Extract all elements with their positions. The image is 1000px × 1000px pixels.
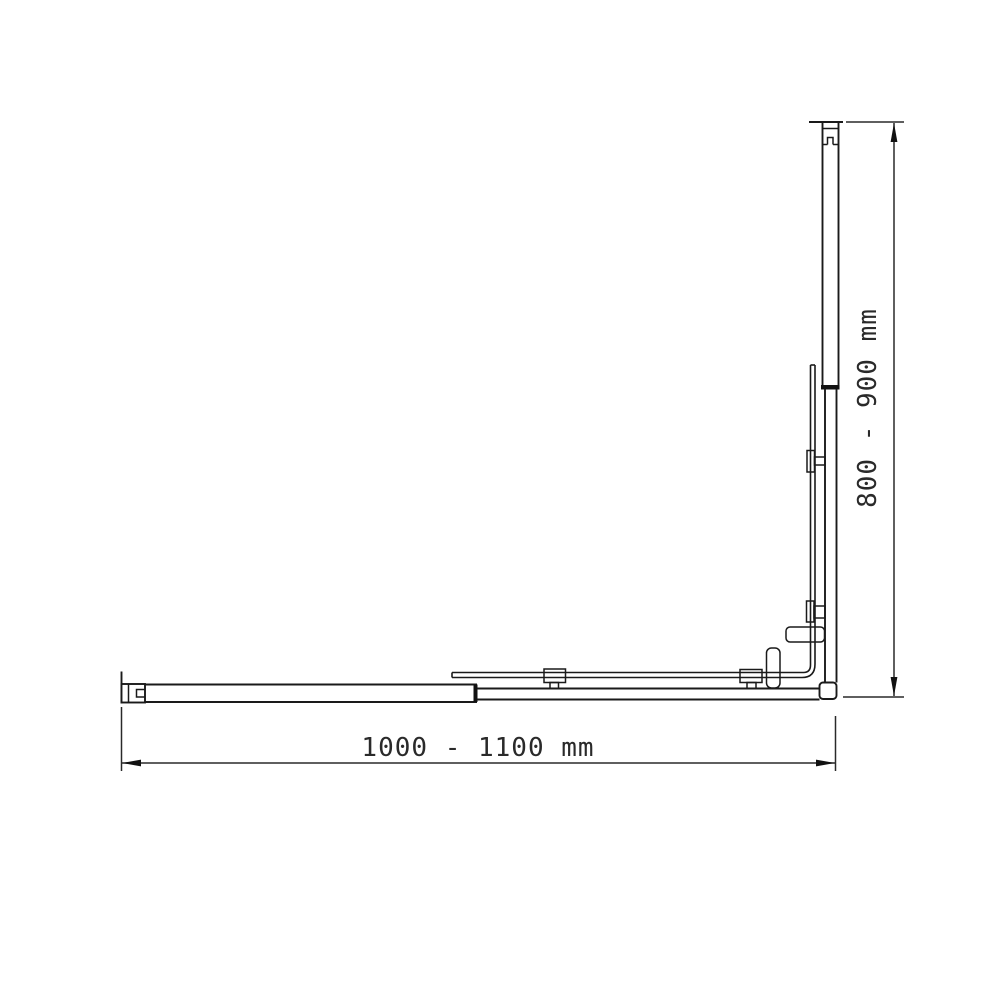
- glass-clamps: [544, 451, 825, 689]
- bottom-rail: [122, 672, 837, 704]
- right-wall-profile: [809, 122, 843, 683]
- height-arrow-top: [891, 123, 898, 142]
- left-wall-bracket: [122, 684, 146, 703]
- glass-outer-edge: [452, 365, 815, 678]
- profile-adjustment-cap: [821, 385, 840, 390]
- right-handle-tab: [786, 627, 825, 642]
- top-bracket-notch: [828, 138, 834, 145]
- corner-junction-block: [820, 683, 837, 700]
- thick-rail-end-cap: [474, 685, 478, 703]
- drawing-canvas: 1000 - 1100 mm 800 - 900 mm: [0, 0, 1000, 1000]
- corner-bumper-block: [767, 648, 781, 688]
- glass-panel: [452, 365, 815, 678]
- width-arrow-right: [816, 760, 835, 767]
- glass-inner-edge: [452, 365, 811, 673]
- height-dimension: 800 - 900 mm: [843, 122, 904, 697]
- shower-screen-plan-drawing: 1000 - 1100 mm 800 - 900 mm: [0, 0, 1000, 1000]
- width-arrow-left: [122, 760, 141, 767]
- height-dimension-label: 800 - 900 mm: [853, 308, 883, 508]
- bottom-left-glass-clip: [544, 669, 566, 683]
- right-upper-clip-connector: [815, 457, 826, 465]
- width-dimension: 1000 - 1100 mm: [122, 707, 836, 771]
- height-arrow-bottom: [891, 677, 898, 696]
- bottom-right-glass-clip: [740, 670, 762, 683]
- width-dimension-label: 1000 - 1100 mm: [361, 733, 594, 763]
